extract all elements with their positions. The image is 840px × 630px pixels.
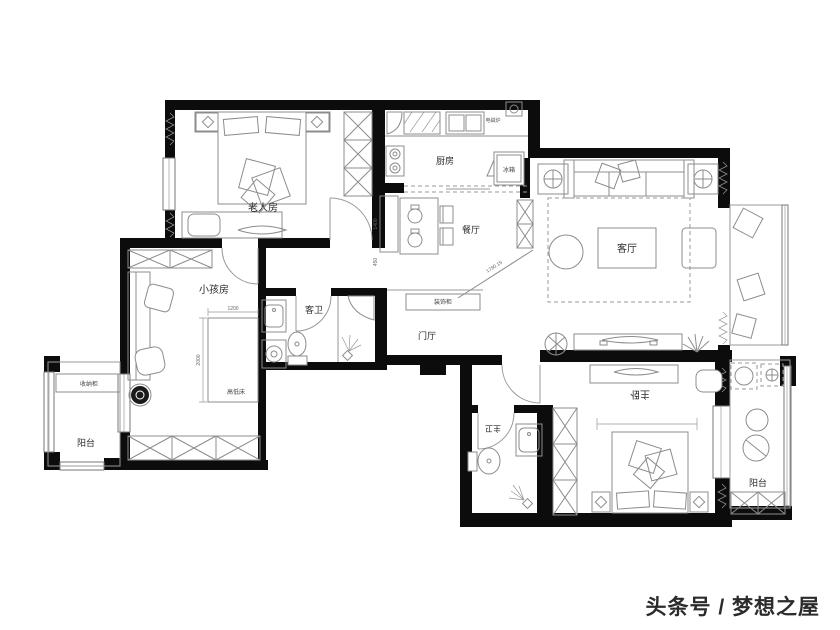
label-foyer: 门厅 bbox=[418, 330, 436, 341]
window-master-balcony bbox=[713, 406, 730, 478]
label-decor-cabinet: 装饰柜 bbox=[434, 298, 452, 306]
label-elder-room: 老人房 bbox=[248, 201, 278, 214]
watermark-text: 头条号 / 梦想之屋 bbox=[645, 595, 820, 619]
label-kitchen: 厨房 bbox=[436, 155, 454, 166]
label-master-bath: 主卫 bbox=[485, 424, 501, 434]
master-stool bbox=[696, 370, 722, 392]
kids-stool bbox=[129, 384, 151, 406]
label-guest-bath: 客卫 bbox=[305, 304, 323, 315]
label-dining: 餐厅 bbox=[462, 224, 480, 235]
label-fridge: 冰箱 bbox=[503, 166, 515, 174]
label-balcony-right: 阳台 bbox=[749, 477, 767, 488]
window-elder-left bbox=[163, 158, 175, 210]
dim-sideboard-length: 1400 bbox=[373, 218, 379, 229]
dim-bunk-length: 2000 bbox=[196, 354, 202, 365]
label-living: 客厅 bbox=[617, 242, 637, 255]
label-bunk-bed: 高低床 bbox=[227, 388, 245, 396]
label-kids-room: 小孩房 bbox=[199, 283, 229, 296]
label-balcony-left: 阳台 bbox=[77, 437, 95, 448]
dim-sideboard-depth: 450 bbox=[373, 258, 379, 267]
elder-bed bbox=[218, 112, 306, 204]
master-bath-toilet bbox=[468, 448, 500, 474]
label-storage-cabinet: 收纳柜 bbox=[80, 380, 98, 388]
guest-bath-toilet bbox=[288, 332, 307, 365]
window-balcony-left-outer bbox=[44, 372, 54, 452]
dim-bunk-width: 1200 bbox=[227, 306, 238, 312]
label-induction-cooker: 电磁炉 bbox=[485, 117, 500, 124]
floor-plan-page: 老人房 小孩房 客卫 厨房 餐厅 客厅 门厅 主卧 主卫 阳台 阳台 收纳柜 高… bbox=[0, 0, 840, 630]
label-master-bedroom: 主卧 bbox=[630, 388, 650, 401]
floor-plan-drawing: 老人房 小孩房 客卫 厨房 餐厅 客厅 门厅 主卧 主卫 阳台 阳台 收纳柜 高… bbox=[0, 0, 840, 630]
